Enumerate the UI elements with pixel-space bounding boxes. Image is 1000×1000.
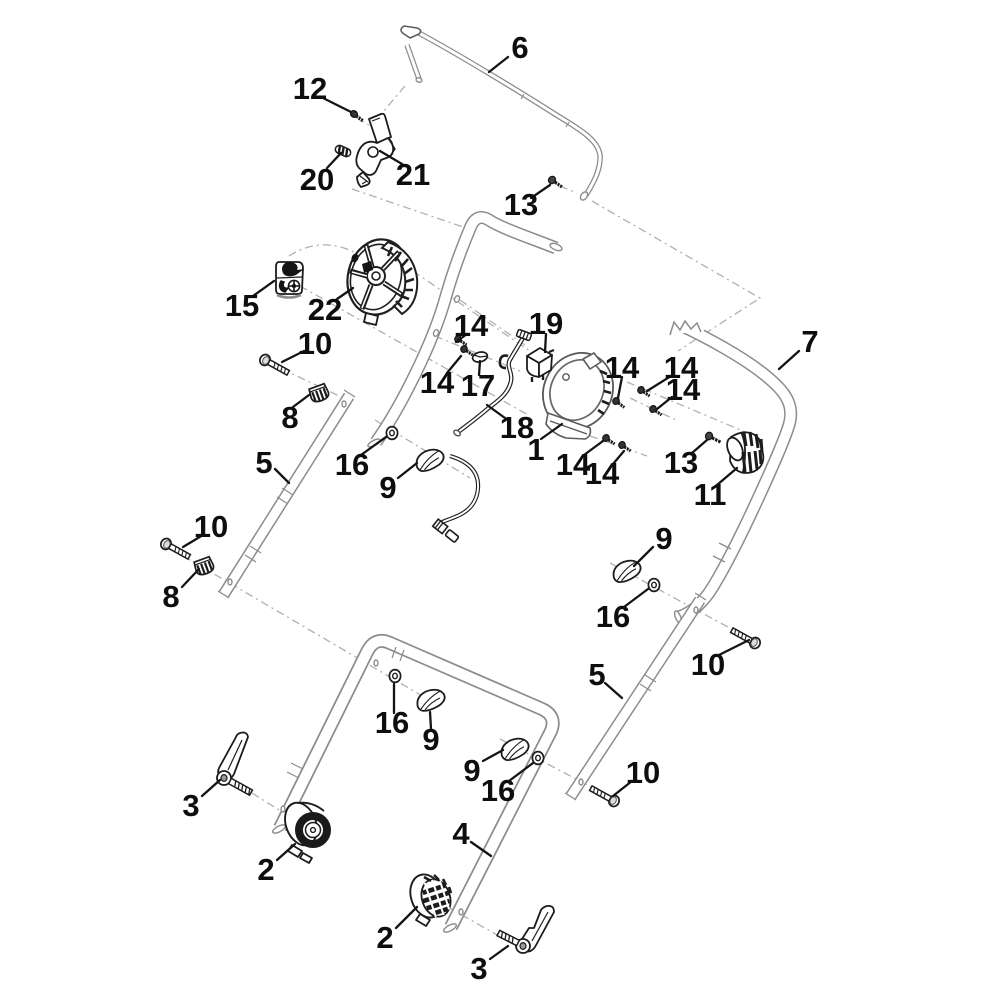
svg-text:14: 14 (666, 372, 701, 407)
svg-text:1: 1 (527, 432, 544, 467)
svg-text:5: 5 (588, 657, 605, 692)
svg-text:13: 13 (664, 445, 698, 480)
svg-text:16: 16 (375, 705, 409, 740)
svg-text:10: 10 (194, 509, 228, 544)
svg-text:21: 21 (396, 157, 430, 192)
svg-text:14: 14 (420, 365, 455, 400)
svg-text:7: 7 (801, 324, 818, 359)
svg-text:15: 15 (225, 288, 259, 323)
svg-text:13: 13 (504, 187, 538, 222)
svg-text:10: 10 (691, 647, 725, 682)
svg-text:22: 22 (308, 292, 342, 327)
svg-text:11: 11 (694, 477, 727, 512)
svg-text:20: 20 (300, 162, 334, 197)
svg-text:2: 2 (376, 920, 393, 955)
svg-text:2: 2 (257, 852, 274, 887)
svg-text:3: 3 (182, 788, 199, 823)
svg-text:17: 17 (461, 368, 495, 403)
svg-text:10: 10 (298, 326, 332, 361)
svg-text:14: 14 (454, 308, 489, 343)
svg-text:10: 10 (626, 755, 660, 790)
svg-text:16: 16 (481, 773, 515, 808)
svg-text:16: 16 (596, 599, 630, 634)
svg-text:3: 3 (470, 951, 487, 986)
svg-text:16: 16 (335, 447, 369, 482)
svg-text:8: 8 (281, 400, 298, 435)
svg-text:8: 8 (162, 579, 179, 614)
svg-text:6: 6 (511, 30, 528, 65)
svg-text:12: 12 (293, 71, 327, 106)
svg-text:14: 14 (605, 350, 640, 385)
svg-text:9: 9 (379, 470, 396, 505)
svg-text:9: 9 (655, 521, 672, 556)
svg-text:14: 14 (585, 456, 620, 491)
svg-text:9: 9 (422, 722, 439, 757)
svg-text:9: 9 (463, 753, 480, 788)
svg-text:19: 19 (529, 306, 563, 341)
svg-text:5: 5 (255, 445, 272, 480)
svg-text:4: 4 (452, 816, 470, 851)
